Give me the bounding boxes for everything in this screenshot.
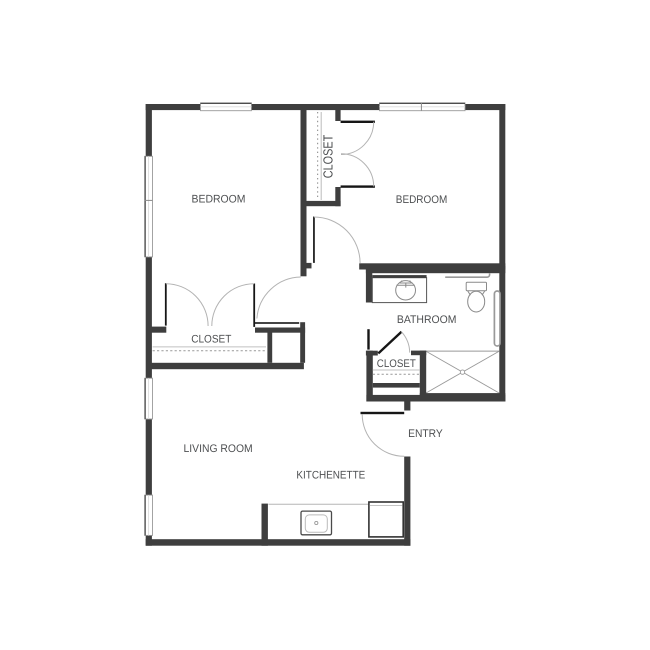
svg-text:BATHROOM: BATHROOM (397, 314, 457, 326)
svg-text:KITCHENETTE: KITCHENETTE (296, 469, 365, 481)
svg-text:CLOSET: CLOSET (377, 358, 416, 370)
svg-text:LIVING ROOM: LIVING ROOM (184, 443, 253, 455)
svg-text:CLOSET: CLOSET (191, 334, 231, 346)
svg-text:CLOSET: CLOSET (321, 135, 336, 178)
svg-text:BEDROOM: BEDROOM (396, 194, 448, 206)
svg-text:ENTRY: ENTRY (408, 428, 443, 440)
svg-text:BEDROOM: BEDROOM (192, 193, 246, 205)
